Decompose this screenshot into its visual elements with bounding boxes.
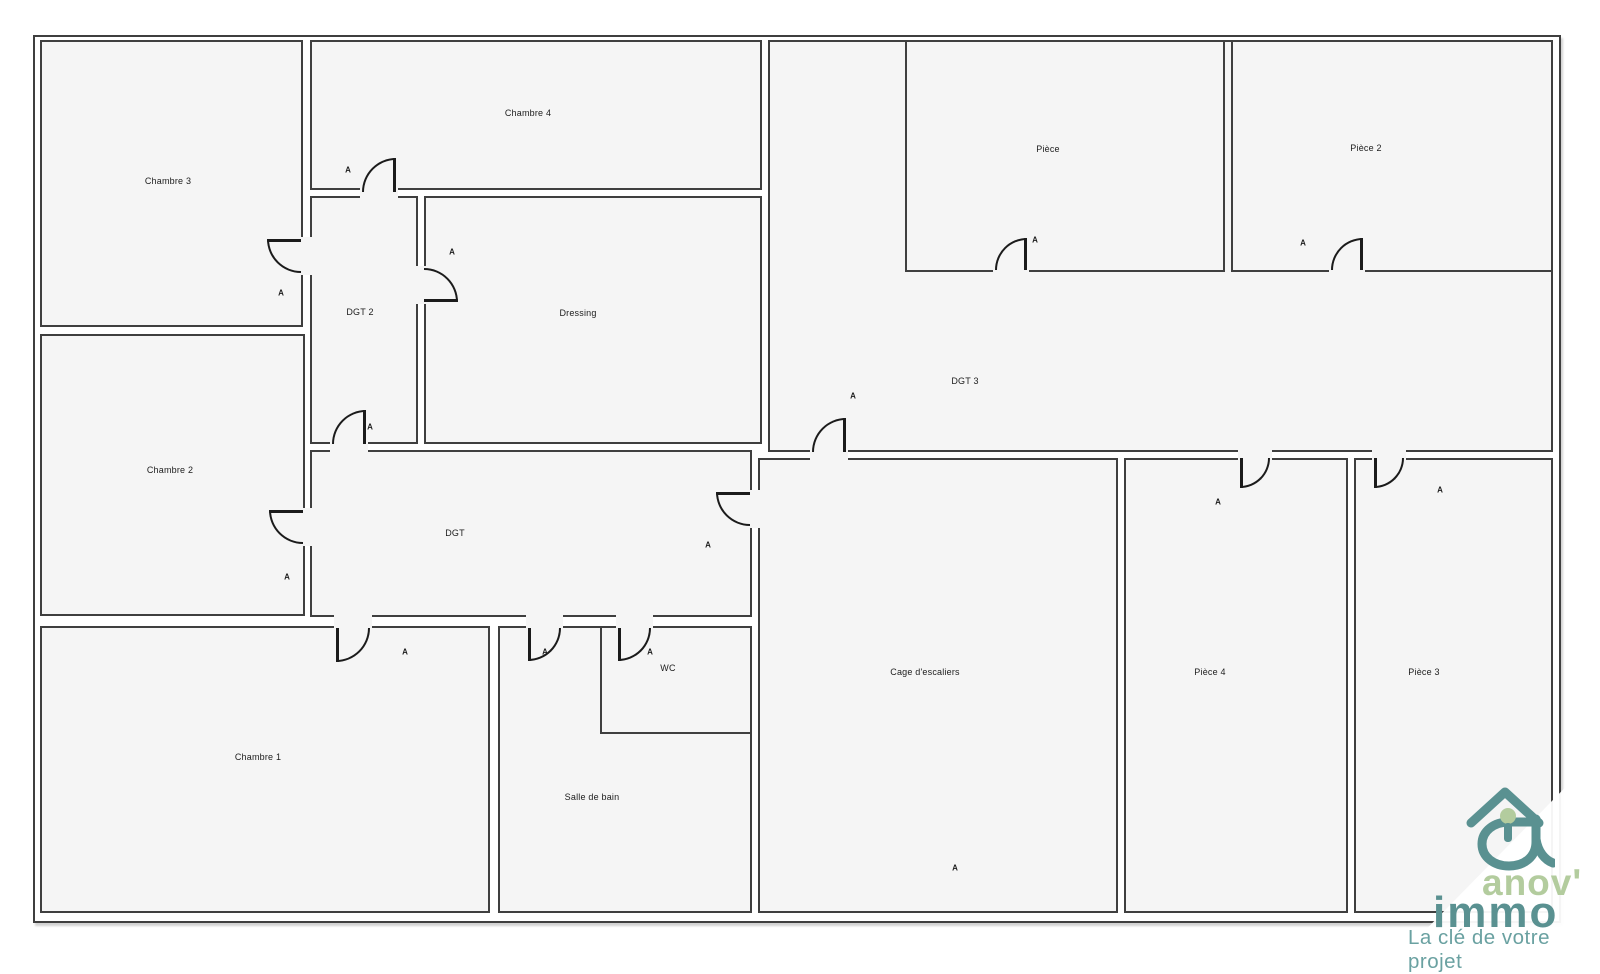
room-label-piece-3: Pièce 3 <box>1408 667 1439 677</box>
room-label-wc: WC <box>660 663 675 673</box>
door-salle-de-bain-opening <box>526 613 563 628</box>
floor-plan-canvas: Chambre 3Chambre 2Chambre 1Chambre 4DGT … <box>0 0 1600 954</box>
door-marker: A <box>542 648 548 657</box>
door-marker: A <box>367 423 373 432</box>
door-wc-opening <box>616 613 653 628</box>
door-marker: A <box>705 541 711 550</box>
door-marker: A <box>278 289 284 298</box>
door-chambre-1-opening <box>334 613 372 628</box>
door-marker: A <box>402 648 408 657</box>
door-marker: A <box>345 166 351 175</box>
room-chambre-1 <box>40 626 490 913</box>
room-label-chambre-3: Chambre 3 <box>145 176 191 186</box>
room-dgt <box>310 450 752 617</box>
room-label-chambre-4: Chambre 4 <box>505 108 551 118</box>
door-chambre-3-opening <box>299 237 313 275</box>
logo-house-icon <box>1455 781 1555 873</box>
room-label-chambre-1: Chambre 1 <box>235 752 281 762</box>
door-marker: A <box>1437 486 1443 495</box>
room-label-dgt-2: DGT 2 <box>346 307 373 317</box>
door-marker: A <box>850 392 856 401</box>
room-label-piece-4: Pièce 4 <box>1194 667 1225 677</box>
room-chambre-2 <box>40 334 305 616</box>
door-marker: A <box>1032 236 1038 245</box>
door-marker: A <box>647 648 653 657</box>
door-marker: A <box>284 573 290 582</box>
room-dgt-2 <box>310 196 418 444</box>
room-piece-2 <box>1231 40 1553 272</box>
door-marker: A <box>449 248 455 257</box>
room-label-piece: Pièce <box>1036 144 1060 154</box>
room-label-salle-de-bain: Salle de bain <box>565 792 620 802</box>
room-label-cage-escaliers: Cage d'escaliers <box>890 667 959 677</box>
door-marker: A <box>1300 239 1306 248</box>
door-chambre-2-opening <box>303 508 315 546</box>
room-piece <box>905 40 1225 272</box>
room-cage-escaliers <box>758 458 1118 913</box>
door-marker: A <box>952 864 958 873</box>
room-piece-4 <box>1124 458 1348 913</box>
room-label-dressing: Dressing <box>559 308 596 318</box>
logo-tagline: La clé de votre projet <box>1408 926 1600 974</box>
door-marker: A <box>1215 498 1221 507</box>
room-label-piece-2: Pièce 2 <box>1350 143 1381 153</box>
room-label-dgt-3: DGT 3 <box>951 376 978 386</box>
room-dressing <box>424 196 762 444</box>
room-label-chambre-2: Chambre 2 <box>147 465 193 475</box>
room-label-dgt: DGT <box>445 528 465 538</box>
